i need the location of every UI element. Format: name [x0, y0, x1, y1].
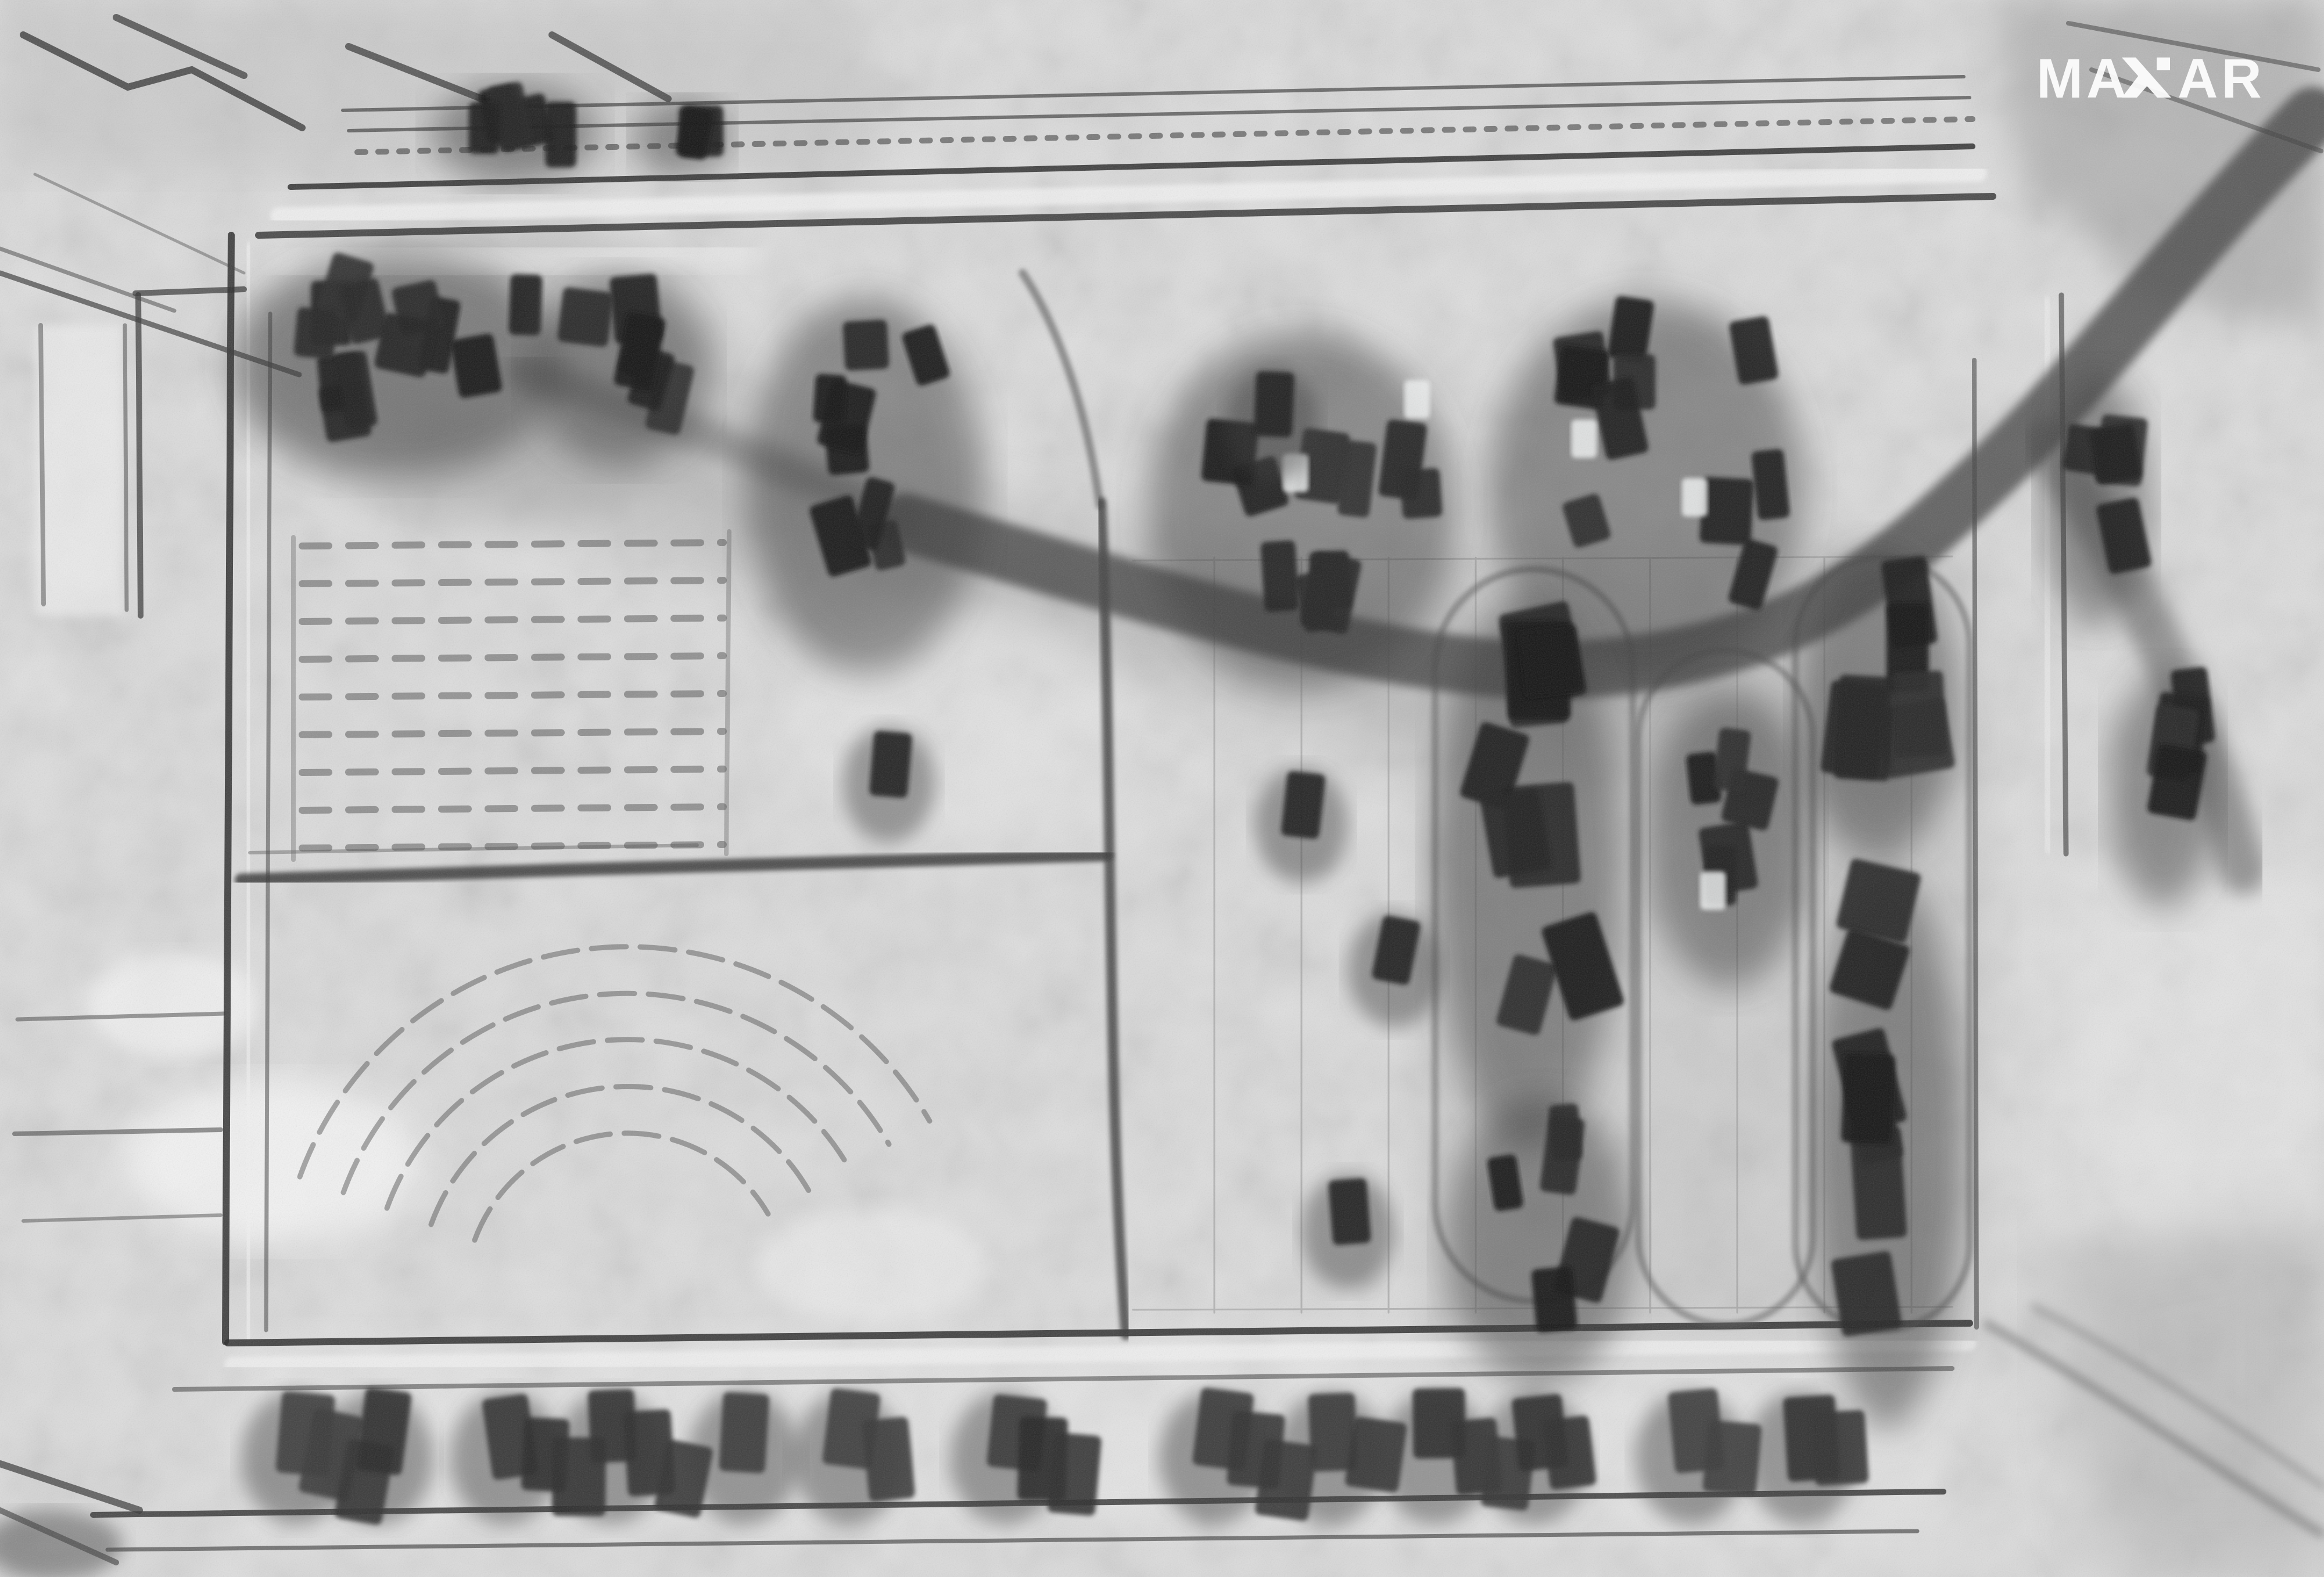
- maxar-x-glyph-dot: [2157, 58, 2170, 70]
- maxar-watermark-text-left: MA: [2036, 48, 2130, 110]
- film-grain-texture: [0, 0, 2324, 1577]
- satellite-image-stage: MA AR: [0, 0, 2324, 1577]
- maxar-watermark-text-right: AR: [2178, 48, 2265, 110]
- satellite-image-canvas: MA AR: [0, 0, 2324, 1577]
